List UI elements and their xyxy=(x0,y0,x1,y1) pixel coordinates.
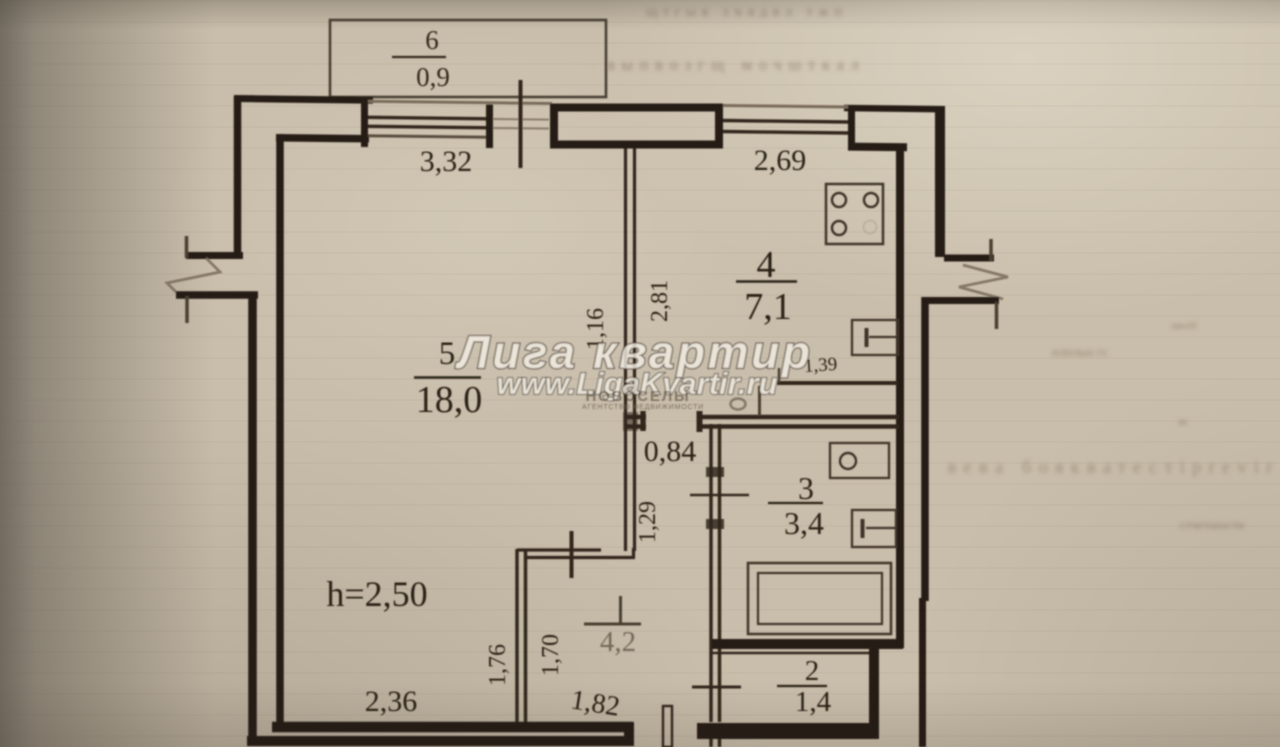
svg-text:0,84: 0,84 xyxy=(644,435,697,468)
svg-text:вева боякватестіprevir: вева боякватестіprevir xyxy=(948,457,1274,478)
svg-text:3,4: 3,4 xyxy=(784,505,824,541)
svg-text:0,9: 0,9 xyxy=(416,62,450,92)
svg-text:2,36: 2,36 xyxy=(365,685,418,718)
svg-text:3,32: 3,32 xyxy=(420,145,473,178)
svg-text:2,69: 2,69 xyxy=(754,144,807,177)
svg-text:1,29: 1,29 xyxy=(635,501,661,543)
svg-text:18,0: 18,0 xyxy=(416,379,483,421)
svg-text:1,82: 1,82 xyxy=(569,684,622,722)
svg-text:4: 4 xyxy=(757,244,776,286)
svg-text:h=2,50: h=2,50 xyxy=(326,574,427,614)
svg-text:2,81: 2,81 xyxy=(647,280,673,322)
svg-text:выпвозгщ мочшткал: выпвозгщ мочшткал xyxy=(607,55,860,74)
svg-text:2: 2 xyxy=(805,655,820,687)
svg-text:7,1: 7,1 xyxy=(744,286,792,328)
svg-text:стчетшости: стчетшости xyxy=(1180,517,1245,532)
svg-text:нлплыо гс: нлплыо гс xyxy=(1052,344,1109,359)
svg-text:1,4: 1,4 xyxy=(795,686,832,718)
svg-text:4,2: 4,2 xyxy=(600,626,636,658)
svg-text:1,70: 1,70 xyxy=(538,634,564,676)
svg-text:1,76: 1,76 xyxy=(485,644,511,686)
svg-text:щтгыя зҡвдвл тжп: щтгыя зҡвдвл тжп xyxy=(646,4,842,20)
svg-text:мютб: мютб xyxy=(1171,320,1197,332)
svg-text:3: 3 xyxy=(798,470,814,506)
svg-text:5: 5 xyxy=(439,336,456,372)
svg-text:ве: ве xyxy=(1178,417,1188,428)
svg-text:НОВОСЕЛЫ: НОВОСЕЛЫ xyxy=(585,388,690,405)
svg-text:6: 6 xyxy=(425,25,439,55)
svg-text:АГЕНТСТВО НЕДВИЖИМОСТИ: АГЕНТСТВО НЕДВИЖИМОСТИ xyxy=(582,404,704,411)
